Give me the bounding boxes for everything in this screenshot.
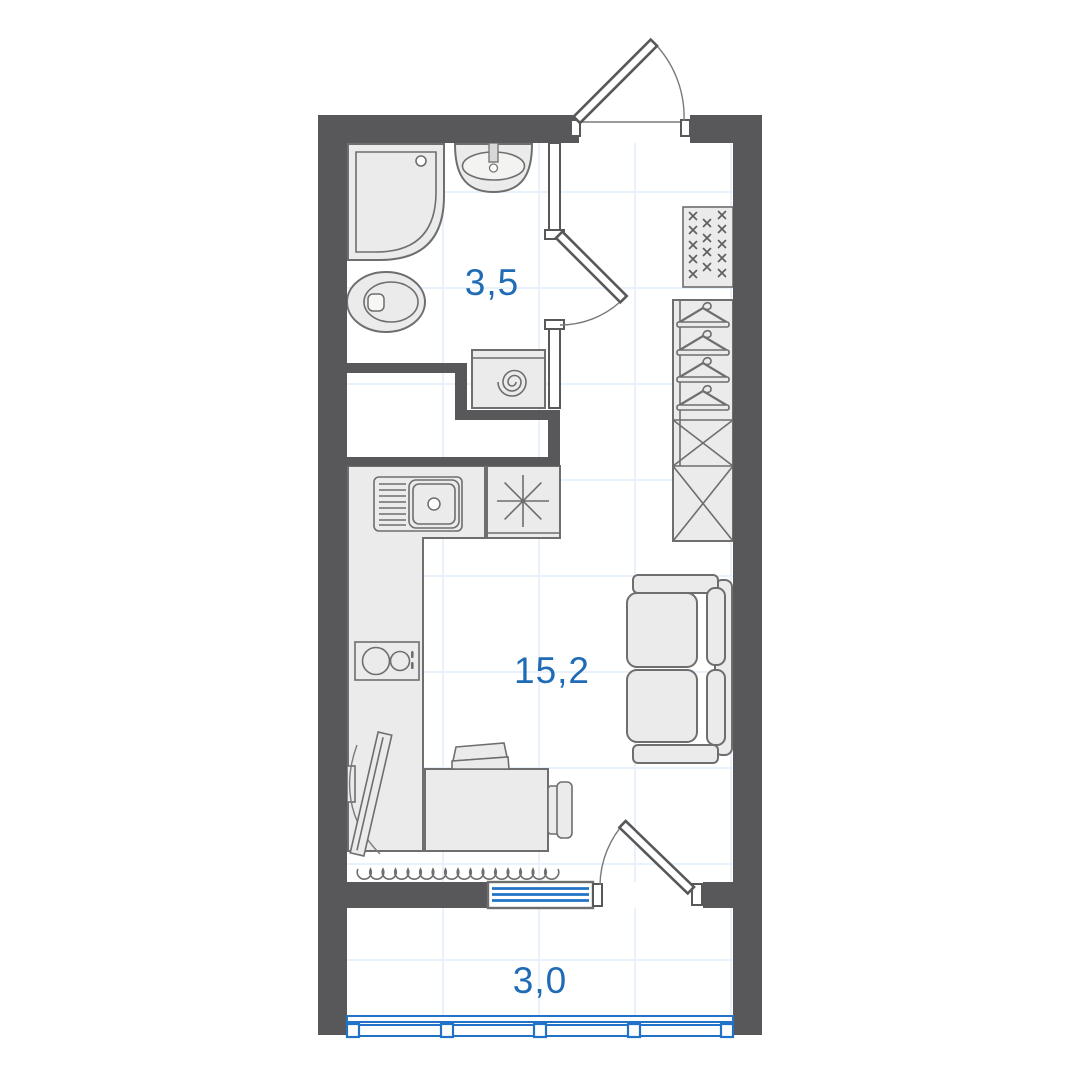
stove-asterisk-icon <box>497 475 549 527</box>
balcony-area-label: 3,0 <box>513 960 567 1002</box>
desk <box>425 769 548 851</box>
side-chair <box>548 782 572 838</box>
kitchen-sink <box>374 477 462 531</box>
wardrobe-with-hangers <box>673 300 733 541</box>
living-kitchen-area-label: 15,2 <box>514 650 590 692</box>
shower <box>348 144 444 260</box>
washing-machine <box>472 350 545 408</box>
toilet <box>347 272 425 332</box>
balcony-window <box>488 882 602 908</box>
balcony-glazing <box>347 1016 733 1037</box>
stove <box>487 466 560 538</box>
sofa <box>627 575 732 763</box>
bathroom-area-label: 3,5 <box>465 262 519 304</box>
faucet-icon <box>489 143 498 162</box>
floorplan-drawing <box>0 0 1080 1080</box>
cooktop <box>355 642 419 680</box>
shelving-unit <box>683 207 733 287</box>
floorplan-canvas: 3,5 15,2 3,0 <box>0 0 1080 1080</box>
desk-chair <box>452 743 509 769</box>
entrance-door <box>571 40 690 136</box>
floor-grid <box>0 0 1080 1080</box>
